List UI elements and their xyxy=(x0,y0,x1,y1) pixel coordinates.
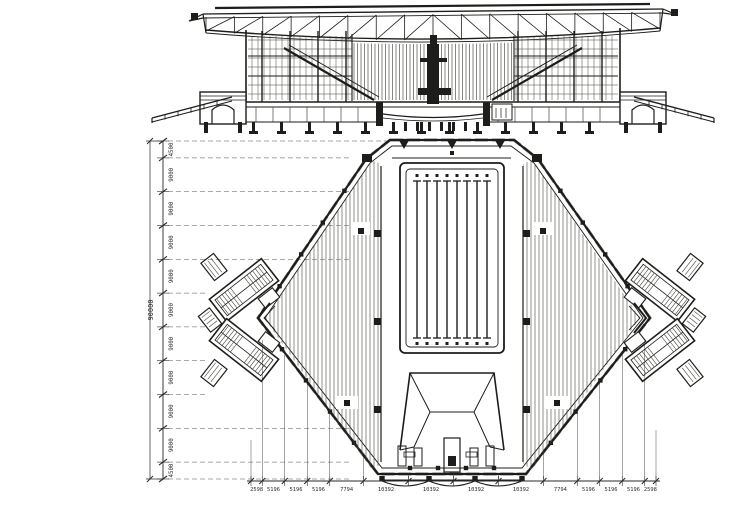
seating-hatch-left xyxy=(266,150,378,472)
left-dim-label: 9000 xyxy=(169,235,175,249)
bottom-dim-label: 5196 xyxy=(312,487,325,493)
bottom-dim-label: 10392 xyxy=(378,487,394,493)
entrance-pavilion xyxy=(620,92,666,133)
left-total-dimension-label: 90000 xyxy=(147,299,155,320)
bottom-dim-label: 10392 xyxy=(513,487,529,493)
bottom-dim-label: 10392 xyxy=(423,487,439,493)
entrance-pavilion xyxy=(200,92,246,133)
left-dim-label: 9000 xyxy=(169,167,175,181)
section-group xyxy=(152,4,714,134)
left-dim-label: 9000 xyxy=(169,370,175,384)
left-dim-label: 9000 xyxy=(169,404,175,418)
bottom-dim-label: 7794 xyxy=(554,487,567,493)
landing-pad xyxy=(201,359,227,386)
base-substructure xyxy=(246,102,620,131)
left-dim-label: 9000 xyxy=(169,269,175,283)
bottom-dim-label: 2598 xyxy=(250,487,263,493)
bottom-dim-label: 5196 xyxy=(627,487,640,493)
bottom-dimension-chain: 2598519651965196779410392103921039210392… xyxy=(247,340,660,493)
left-dim-label: 9000 xyxy=(169,201,175,215)
organ-stage-block xyxy=(400,163,504,353)
foundation-piers xyxy=(249,122,594,134)
bottom-dim-label: 5196 xyxy=(582,487,595,493)
stair-wing-right xyxy=(624,253,705,386)
left-dim-label: 9000 xyxy=(169,303,175,317)
architectural-drawing: 4500900090009000900090009000900090009000… xyxy=(0,0,750,508)
bottom-dim-label: 10392 xyxy=(468,487,484,493)
bottom-dim-label: 2598 xyxy=(644,487,657,493)
left-dim-label: 9000 xyxy=(169,336,175,350)
stair-wing-left xyxy=(198,253,279,386)
podium-benches xyxy=(398,438,494,472)
building-section xyxy=(152,4,714,134)
bottom-dim-label: 7794 xyxy=(340,487,353,493)
landing-pad xyxy=(201,253,227,280)
bottom-dim-label: 5196 xyxy=(267,487,280,493)
left-dim-label: 4500 xyxy=(169,142,175,156)
left-dim-label: 4500 xyxy=(169,463,175,477)
left-dim-label: 9000 xyxy=(169,438,175,452)
entrance-canopies xyxy=(378,474,526,486)
bottom-dim-label: 5196 xyxy=(290,487,303,493)
drawing-sheet: 4500900090009000900090009000900090009000… xyxy=(0,0,750,508)
central-core xyxy=(418,35,451,104)
seating-hatch-right xyxy=(523,150,639,472)
bottom-dim-label: 5196 xyxy=(605,487,618,493)
